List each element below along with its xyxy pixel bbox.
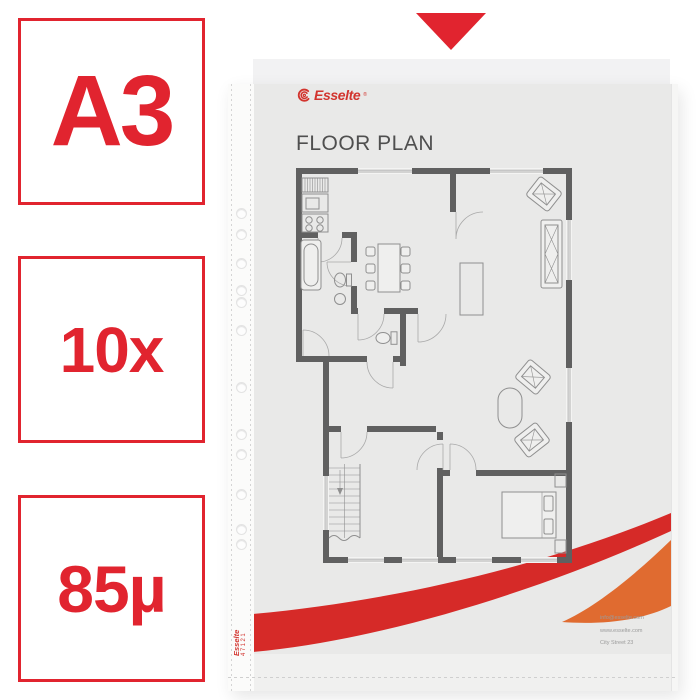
pocket-flap: [253, 59, 670, 86]
contact-address: City Street 23: [600, 637, 644, 650]
punch-hole: [236, 258, 247, 269]
punch-hole: [236, 382, 247, 393]
punch-hole: [236, 325, 247, 336]
brand-name: Esselte: [314, 87, 360, 103]
punch-hole: [236, 524, 247, 535]
bedroom-furniture: [502, 474, 566, 553]
kitchen-fixtures: [302, 178, 328, 232]
bathroom-fixtures: [301, 240, 352, 305]
stitch-line: [231, 84, 232, 691]
binding-strip: [228, 84, 254, 691]
contact-website: www.esselte.com: [600, 625, 644, 638]
size-badge-label: A3: [51, 54, 173, 169]
spine-brand: Esselte: [232, 606, 241, 656]
contact-email: info@esselte.com: [600, 612, 644, 625]
brand-logo: Esselte ®: [297, 87, 367, 103]
pointer-arrow-icon: [416, 13, 486, 50]
punch-hole: [236, 429, 247, 440]
document-title: FLOOR PLAN: [296, 132, 434, 156]
pocket-bottom-seam: [228, 677, 677, 678]
floor-plan-drawing: [296, 168, 572, 563]
spine-label: Esselte 47121: [232, 606, 252, 656]
stitch-line: [250, 84, 251, 691]
punch-hole: [236, 539, 247, 550]
document-paper: Esselte ® FLOOR PLAN: [254, 84, 671, 654]
pack-count-badge: 10x: [18, 256, 205, 443]
contact-info: info@esselte.com www.esselte.com City St…: [600, 612, 644, 650]
punch-hole: [236, 449, 247, 460]
sheet-protector-pocket: Esselte ® FLOOR PLAN: [228, 84, 677, 691]
product-image: A3 10x 85µ: [0, 0, 700, 700]
living-room-furniture: [460, 176, 562, 315]
punch-hole: [236, 208, 247, 219]
thickness-label: 85µ: [57, 551, 165, 627]
wc-fixtures: [376, 332, 397, 345]
sitting-area-furniture: [498, 359, 551, 458]
pocket-right-seam: [671, 84, 678, 691]
punch-hole: [236, 297, 247, 308]
registered-mark: ®: [363, 92, 367, 98]
pack-count-label: 10x: [60, 313, 164, 387]
staircase: [329, 464, 360, 541]
punch-hole: [236, 489, 247, 500]
size-badge: A3: [18, 18, 205, 205]
punch-hole: [236, 285, 247, 296]
spine-article-code: 47121: [241, 606, 247, 656]
esselte-logo-icon: [297, 88, 311, 102]
thickness-badge: 85µ: [18, 495, 205, 682]
dining-set: [366, 244, 410, 292]
punch-hole: [236, 229, 247, 240]
